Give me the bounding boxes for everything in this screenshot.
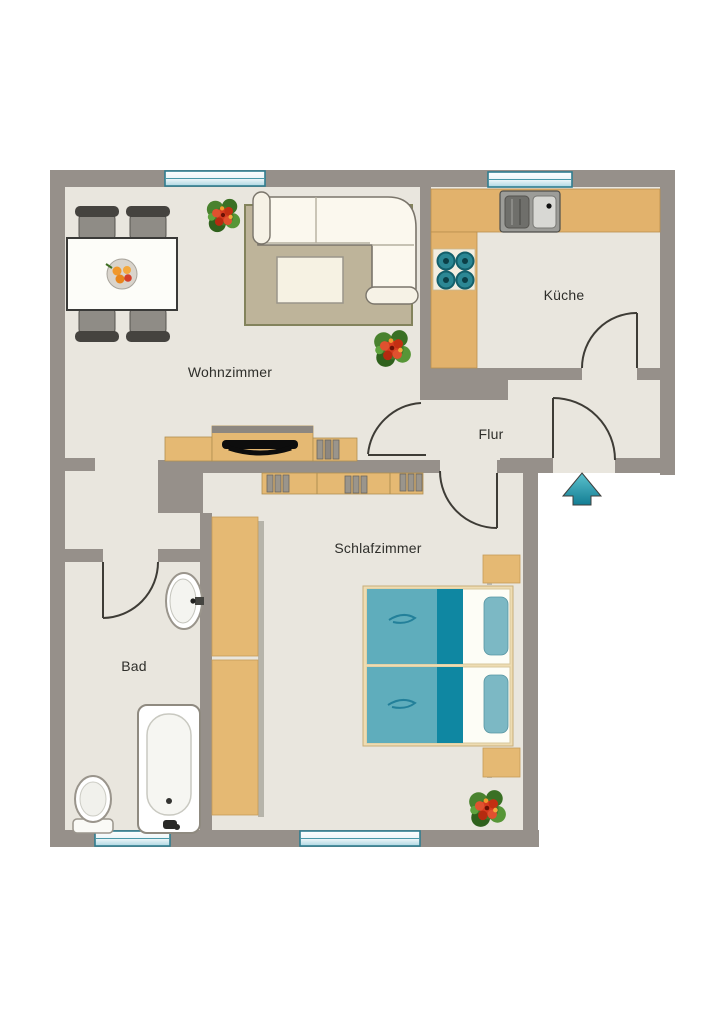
room-label-schlafzimmer: Schlafzimmer bbox=[334, 540, 421, 556]
wardrobe bbox=[212, 517, 264, 817]
floor-plan-drawing bbox=[0, 0, 724, 1024]
stove bbox=[433, 249, 475, 290]
tv bbox=[222, 440, 298, 453]
nightstand bbox=[483, 555, 520, 585]
room-label-bad: Bad bbox=[121, 658, 147, 674]
dining-chair bbox=[126, 307, 170, 342]
bathtub bbox=[138, 705, 200, 833]
coffee-table bbox=[277, 257, 343, 303]
pillow bbox=[484, 675, 508, 733]
double-bed bbox=[363, 555, 520, 778]
plant bbox=[374, 330, 411, 367]
media-rack bbox=[313, 438, 357, 461]
window-bedroom bbox=[300, 831, 420, 846]
kitchen-sink bbox=[500, 191, 560, 232]
dining-chair bbox=[75, 206, 119, 241]
nightstand bbox=[483, 748, 520, 778]
pillow bbox=[484, 597, 508, 655]
floor-plan-page: Wohnzimmer Küche Flur Schlafzimmer Bad bbox=[0, 0, 724, 1024]
plant bbox=[469, 790, 506, 827]
dresser bbox=[262, 473, 423, 494]
room-label-wohnzimmer: Wohnzimmer bbox=[188, 364, 272, 380]
room-label-flur: Flur bbox=[479, 426, 504, 442]
window-kitchen bbox=[488, 172, 572, 187]
entrance-arrow-icon bbox=[563, 473, 601, 505]
plant bbox=[207, 199, 240, 232]
room-label-kueche: Küche bbox=[544, 287, 585, 303]
toilet bbox=[73, 776, 113, 833]
dining-chair bbox=[75, 307, 119, 342]
fruit-bowl bbox=[106, 259, 137, 289]
window-livingroom bbox=[165, 171, 265, 186]
dining-chair bbox=[126, 206, 170, 241]
